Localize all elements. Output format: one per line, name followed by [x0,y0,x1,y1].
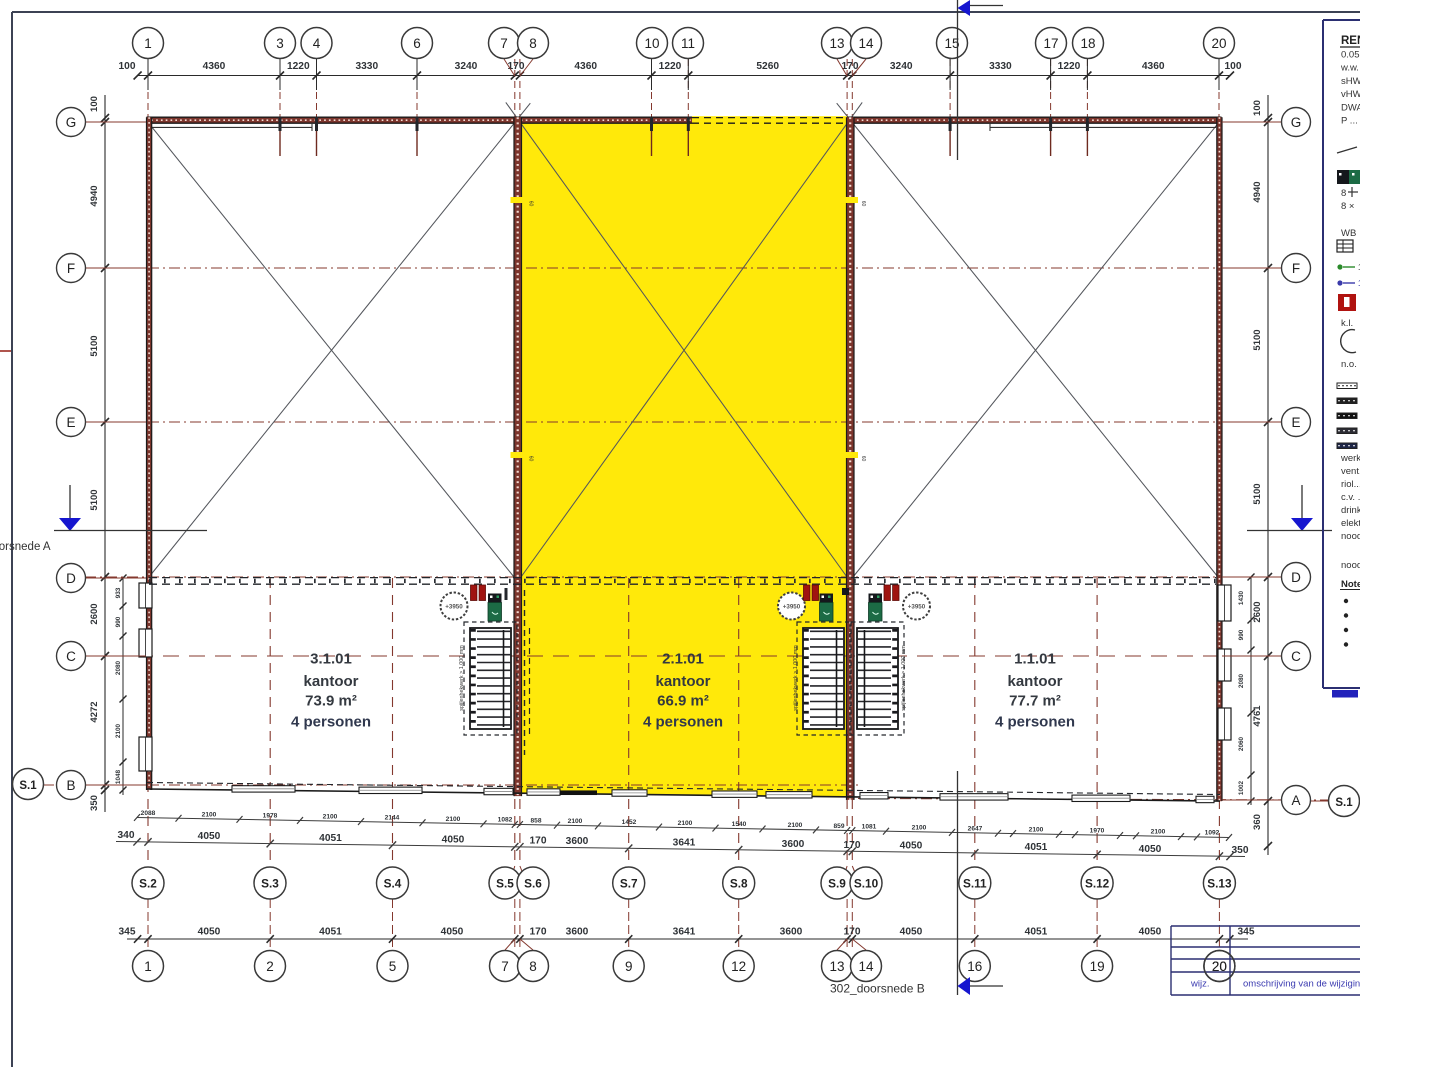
svg-text:S.1: S.1 [1335,797,1353,809]
svg-text:8: 8 [1341,188,1346,199]
svg-text:100: 100 [89,96,100,112]
svg-text:2100: 2100 [568,818,583,825]
svg-text:S.1: S.1 [19,780,37,792]
svg-text:100: 100 [1252,100,1263,116]
svg-text:9: 9 [625,959,633,974]
svg-text:C: C [1291,649,1301,664]
svg-text:14: 14 [858,959,874,974]
svg-text:S.13: S.13 [1207,877,1232,891]
svg-text:3600: 3600 [566,927,589,938]
svg-text:170: 170 [530,836,547,847]
svg-text:4051: 4051 [1025,927,1048,938]
svg-text:3600: 3600 [780,927,803,938]
svg-text:3330: 3330 [355,61,378,72]
svg-text:11: 11 [681,36,695,51]
svg-text:S.5: S.5 [496,877,514,891]
svg-text:14: 14 [858,36,874,51]
svg-text:4: 4 [313,36,321,51]
svg-text:1081: 1081 [862,823,877,830]
svg-text:5: 5 [389,959,397,974]
svg-text:2100: 2100 [912,824,927,831]
svg-text:7: 7 [501,959,509,974]
svg-text:990: 990 [115,616,122,627]
svg-text:8: 8 [529,959,537,974]
svg-text:n.o.: n.o. [1341,359,1357,370]
svg-text:S.6: S.6 [524,877,542,891]
svg-text:3240: 3240 [455,61,478,72]
svg-text:S.2: S.2 [139,877,157,891]
svg-text:4050: 4050 [900,927,923,938]
svg-text:7: 7 [500,36,508,51]
svg-text:2144: 2144 [385,815,400,822]
svg-text:4050: 4050 [198,831,221,842]
svg-text:2100: 2100 [1029,826,1044,833]
svg-text:2100: 2100 [1151,829,1166,836]
svg-text:4050: 4050 [442,834,465,845]
svg-text:S.8: S.8 [730,877,748,891]
svg-text:6: 6 [413,36,421,51]
svg-text:1.1.01: 1.1.01 [1014,651,1056,668]
svg-text:S.10: S.10 [854,877,879,891]
svg-text:20: 20 [1211,36,1226,51]
svg-text:13: 13 [829,36,844,51]
svg-text:k.l.: k.l. [1341,318,1353,329]
svg-text:170: 170 [844,927,861,938]
svg-text:19: 19 [1090,959,1105,974]
svg-text:8: 8 [529,36,537,51]
svg-text:73.9 m²: 73.9 m² [305,693,357,710]
svg-text:4 personen: 4 personen [291,714,371,731]
svg-text:66.9 m²: 66.9 m² [657,693,709,710]
svg-text:60: 60 [860,201,866,207]
svg-text:riol...: riol... [1341,479,1362,490]
svg-text:A: A [1291,793,1300,808]
svg-text:170: 170 [530,927,547,938]
svg-text:1540: 1540 [732,821,747,828]
svg-text:kantoor: kantoor [1007,673,1062,690]
svg-text:16: 16 [967,959,982,974]
svg-text:60: 60 [528,201,534,207]
svg-text:13: 13 [829,959,844,974]
svg-text:2100: 2100 [678,820,693,827]
svg-text:1220: 1220 [659,61,682,72]
svg-text:4360: 4360 [574,61,597,72]
svg-text:170: 170 [508,61,525,72]
svg-text:+3950: +3950 [783,604,801,611]
svg-text:doorsnede A: doorsnede A [0,541,51,553]
svg-text:G: G [1291,115,1302,130]
svg-text:345: 345 [119,927,136,938]
svg-text:2100: 2100 [446,816,461,823]
svg-text:1: 1 [144,959,152,974]
svg-text:360: 360 [1252,814,1263,830]
svg-text:4050: 4050 [1139,927,1162,938]
svg-text:4761: 4761 [1252,705,1263,727]
svg-text:1978: 1978 [263,812,278,819]
svg-text:kantoor: kantoor [303,673,358,690]
svg-text:3641: 3641 [673,838,696,849]
svg-text:3330: 3330 [989,61,1012,72]
svg-text:4 personen: 4 personen [995,714,1075,731]
svg-text:B: B [66,778,75,793]
svg-text:20: 20 [1212,959,1227,974]
svg-text:1082: 1082 [498,817,513,824]
svg-text:S.3: S.3 [261,877,279,891]
svg-text:1: 1 [144,36,152,51]
svg-text:F: F [1292,261,1300,276]
svg-text:2: 2 [266,959,274,974]
svg-text:1452: 1452 [622,819,637,826]
svg-text:3240: 3240 [890,61,913,72]
svg-text:4360: 4360 [203,61,226,72]
svg-text:wijz.: wijz. [1190,979,1209,990]
svg-text:S.4: S.4 [384,877,402,891]
svg-text:933: 933 [115,587,122,598]
svg-text:kantoor: kantoor [655,673,710,690]
svg-text:1002: 1002 [1238,780,1245,795]
svg-text:4051: 4051 [319,927,342,938]
svg-text:spijlenhekwerk > 1.000 mm: spijlenhekwerk > 1.000 mm [901,645,907,711]
svg-text:2100: 2100 [202,811,217,818]
svg-text:4050: 4050 [900,841,923,852]
svg-text:4272: 4272 [89,701,100,722]
svg-text:18: 18 [1080,36,1095,51]
svg-text:8 ×: 8 × [1341,201,1354,212]
svg-text:3641: 3641 [673,927,696,938]
svg-text:100: 100 [1225,61,1242,72]
svg-text:2060: 2060 [1238,736,1245,751]
svg-text:1220: 1220 [287,61,310,72]
svg-text:P ...: P ... [1341,116,1358,127]
svg-text:2080: 2080 [115,660,122,675]
svg-text:5100: 5100 [89,489,100,510]
svg-text:+3950: +3950 [445,604,463,611]
svg-text:D: D [66,571,76,586]
svg-text:990: 990 [1238,629,1245,640]
svg-text:4360: 4360 [1142,61,1165,72]
svg-text:4050: 4050 [441,927,464,938]
svg-text:omschrijving van de wijziging: omschrijving van de wijziging [1243,979,1366,990]
svg-text:60: 60 [528,456,534,462]
svg-text:4940: 4940 [1252,181,1263,202]
svg-text:+3950: +3950 [908,604,926,611]
svg-text:2100: 2100 [323,814,338,821]
svg-text:1220: 1220 [1058,61,1081,72]
svg-text:10: 10 [644,36,659,51]
svg-text:2.1.01: 2.1.01 [662,651,704,668]
svg-text:2080: 2080 [1238,673,1245,688]
svg-text:350: 350 [1232,845,1249,856]
svg-text:340: 340 [118,830,135,841]
svg-text:60: 60 [860,456,866,462]
svg-text:2600: 2600 [89,603,100,624]
svg-text:302_doorsnede B: 302_doorsnede B [830,982,925,996]
svg-text:2647: 2647 [968,825,983,832]
svg-text:1430: 1430 [1238,590,1245,605]
svg-text:2100: 2100 [115,723,122,738]
svg-text:4051: 4051 [1025,842,1048,853]
svg-text:5100: 5100 [1252,483,1263,504]
svg-text:F: F [67,261,75,276]
svg-text:1048: 1048 [115,769,122,784]
svg-text:WB: WB [1341,228,1356,239]
svg-text:2100: 2100 [788,822,803,829]
svg-text:2088: 2088 [141,810,156,817]
svg-text:345: 345 [1238,927,1255,938]
svg-text:4050: 4050 [198,927,221,938]
svg-text:4051: 4051 [319,833,342,844]
svg-text:1970: 1970 [1090,828,1105,835]
svg-text:S.12: S.12 [1085,877,1110,891]
svg-text:C: C [66,649,76,664]
svg-text:4 personen: 4 personen [643,714,723,731]
svg-text:5260: 5260 [756,61,779,72]
svg-text:3600: 3600 [782,839,805,850]
svg-text:17: 17 [1043,36,1058,51]
svg-text:4050: 4050 [1139,844,1162,855]
svg-text:3.1.01: 3.1.01 [310,651,352,668]
svg-text:100: 100 [119,61,136,72]
svg-text:spijlenhekwerk > 1.000 mm: spijlenhekwerk > 1.000 mm [793,645,799,711]
svg-text:S.9: S.9 [828,877,846,891]
svg-text:D: D [1291,570,1301,585]
svg-text:858: 858 [530,817,541,824]
svg-text:3600: 3600 [566,836,589,847]
svg-text:859: 859 [833,823,844,830]
svg-text:1092: 1092 [1205,830,1220,837]
svg-text:S.7: S.7 [620,877,638,891]
svg-text:5100: 5100 [89,335,100,356]
svg-text:E: E [66,415,75,430]
svg-text:5100: 5100 [1252,329,1263,350]
svg-text:2600: 2600 [1252,601,1263,622]
svg-text:350: 350 [89,795,100,811]
svg-text:S.11: S.11 [963,877,987,891]
svg-text:3: 3 [276,36,284,51]
svg-text:77.7 m²: 77.7 m² [1009,693,1061,710]
svg-text:spijlenhekwerk > 1.000 mm: spijlenhekwerk > 1.000 mm [459,645,465,711]
svg-text:4940: 4940 [89,185,100,206]
svg-text:12: 12 [731,959,746,974]
svg-text:G: G [66,115,77,130]
svg-text:170: 170 [844,840,861,851]
svg-text:E: E [1291,415,1300,430]
